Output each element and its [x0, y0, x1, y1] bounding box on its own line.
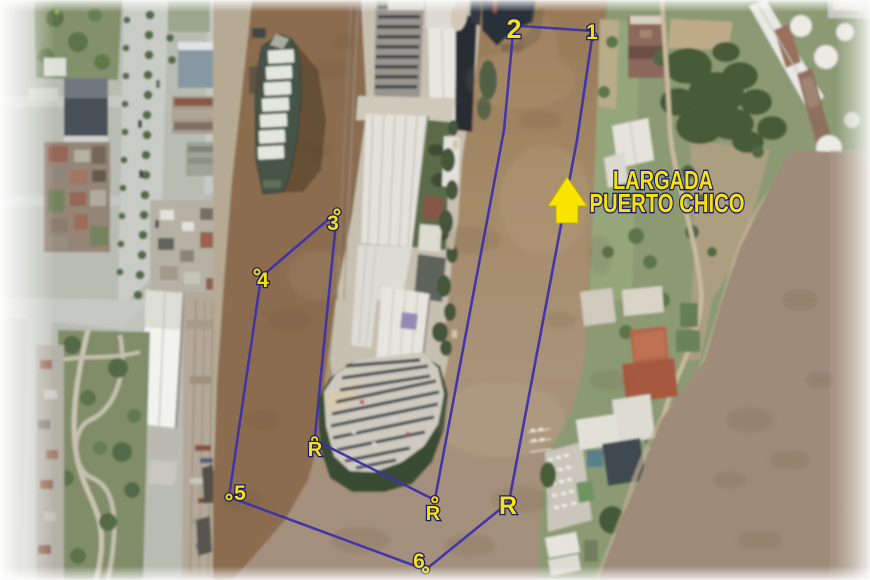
svg-text:3: 3 [327, 212, 339, 235]
svg-text:R: R [308, 439, 323, 461]
svg-text:2: 2 [506, 14, 521, 44]
svg-text:4: 4 [257, 269, 269, 292]
svg-text:1: 1 [586, 21, 598, 44]
svg-text:5: 5 [234, 482, 246, 505]
svg-text:R: R [499, 492, 517, 520]
svg-text:R: R [426, 503, 441, 525]
svg-text:PUERTO CHICO: PUERTO CHICO [590, 188, 745, 218]
